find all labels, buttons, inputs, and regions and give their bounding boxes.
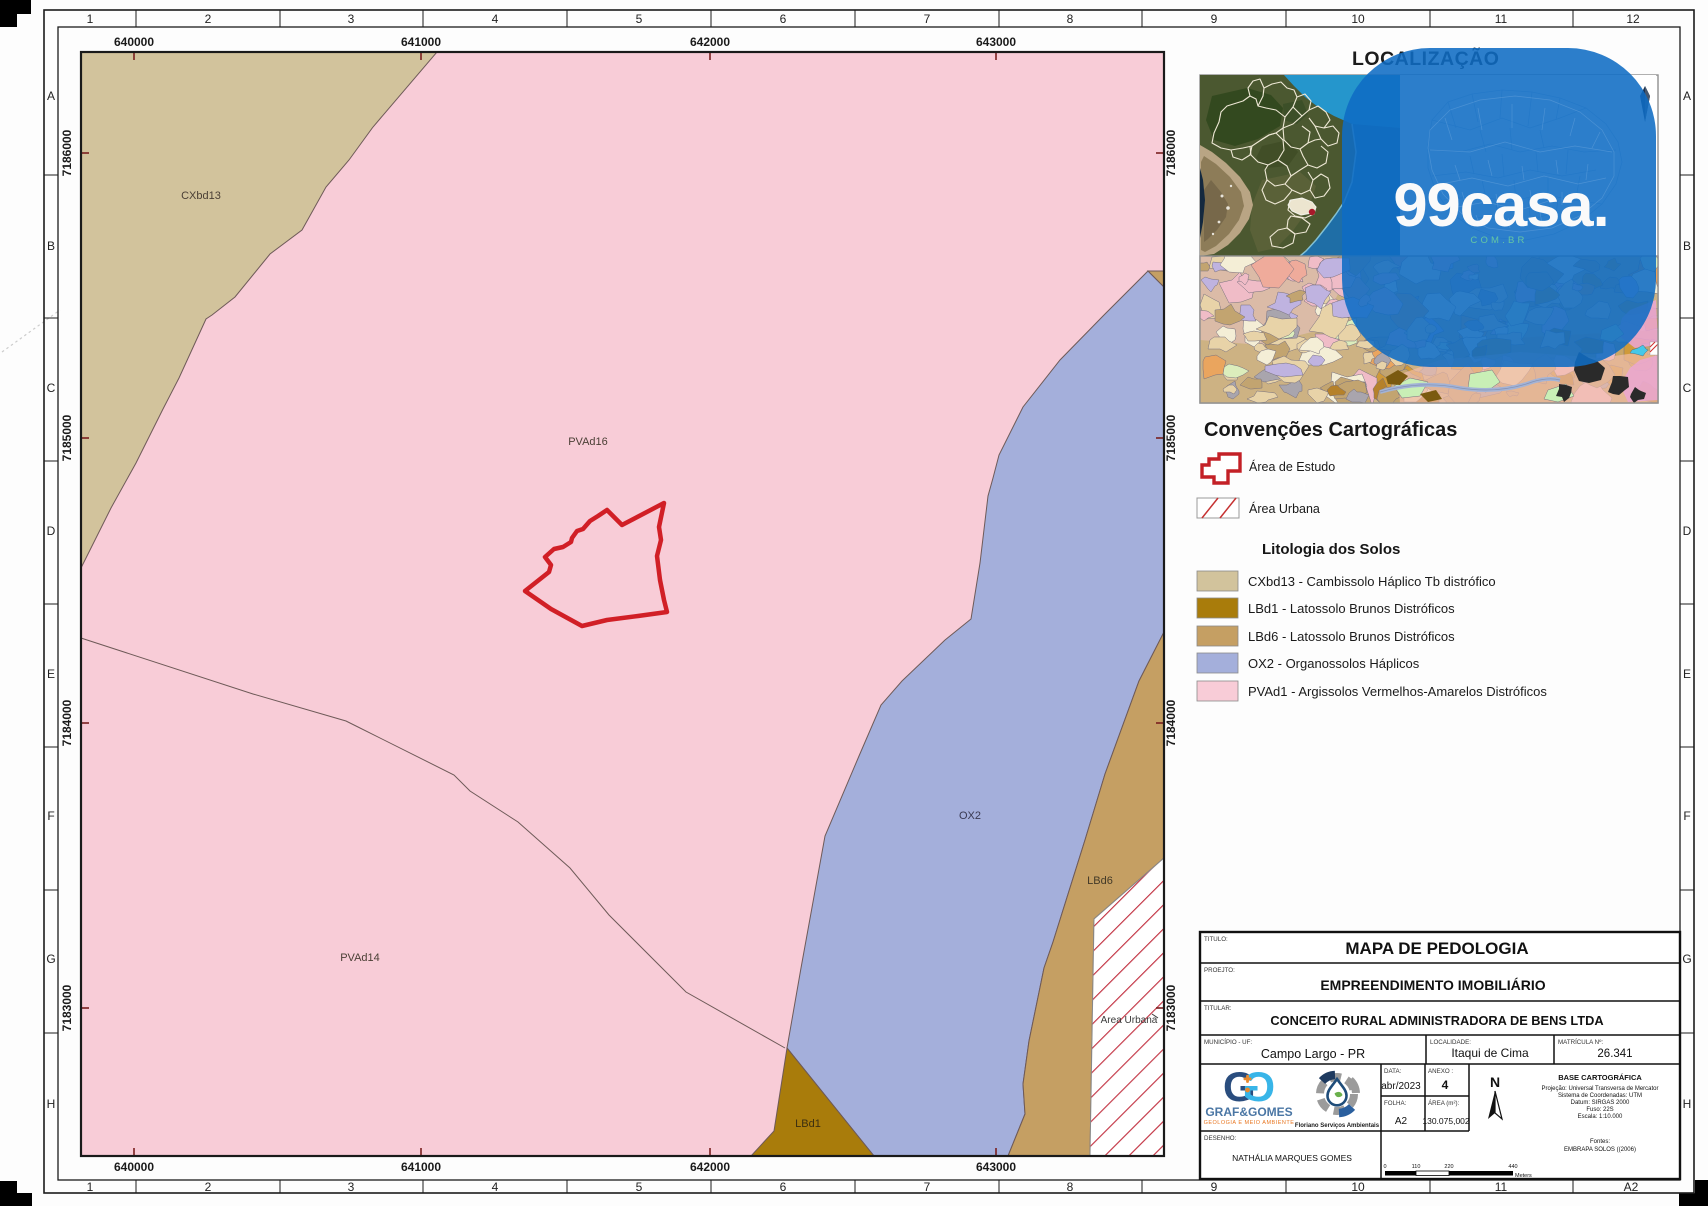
svg-text:3: 3 <box>348 1180 355 1194</box>
svg-text:COM.BR: COM.BR <box>1470 235 1527 246</box>
svg-text:OX2: OX2 <box>959 810 981 822</box>
svg-text:7185000: 7185000 <box>60 414 74 461</box>
svg-text:G: G <box>1242 1063 1275 1110</box>
svg-text:4: 4 <box>492 12 499 26</box>
svg-text:A2: A2 <box>1395 1116 1408 1127</box>
svg-text:0: 0 <box>1383 1164 1386 1170</box>
svg-text:FOLHA:: FOLHA: <box>1384 1100 1407 1107</box>
svg-text:Escala: 1:10.000: Escala: 1:10.000 <box>1578 1114 1623 1120</box>
svg-text:G: G <box>1682 952 1691 966</box>
svg-text:6: 6 <box>780 12 787 26</box>
svg-text:Projeção: Universal Transversa: Projeção: Universal Transversa de Mercat… <box>1541 1086 1658 1092</box>
svg-text:CONCEITO RURAL ADMINISTRADORA: CONCEITO RURAL ADMINISTRADORA DE BENS LT… <box>1270 1013 1603 1028</box>
svg-text:11: 11 <box>1495 1180 1508 1194</box>
svg-text:C: C <box>47 381 56 395</box>
svg-text:F: F <box>1683 809 1690 823</box>
svg-text:10: 10 <box>1351 1180 1365 1194</box>
svg-text:7184000: 7184000 <box>1164 699 1178 746</box>
svg-text:NATHÁLIA MARQUES GOMES: NATHÁLIA MARQUES GOMES <box>1232 1153 1352 1163</box>
svg-text:PVAd1 - Argissolos Vermelhos-A: PVAd1 - Argissolos Vermelhos-Amarelos Di… <box>1248 684 1547 699</box>
svg-text:640000: 640000 <box>114 35 154 49</box>
svg-text:A2: A2 <box>1624 1180 1639 1194</box>
svg-text:B: B <box>1683 239 1691 253</box>
svg-text:ANEXO :: ANEXO : <box>1428 1068 1453 1075</box>
svg-text:110: 110 <box>1412 1164 1421 1170</box>
svg-text:7184000: 7184000 <box>60 699 74 746</box>
svg-text:220: 220 <box>1444 1164 1453 1170</box>
svg-text:Meters: Meters <box>1515 1173 1532 1179</box>
svg-text:H: H <box>47 1097 56 1111</box>
svg-text:640000: 640000 <box>114 1160 154 1174</box>
svg-text:G: G <box>46 952 55 966</box>
svg-text:Litologia dos Solos: Litologia dos Solos <box>1262 541 1400 558</box>
svg-text:8: 8 <box>1067 12 1074 26</box>
svg-text:CXbd13 - Cambissolo Háplico Tb: CXbd13 - Cambissolo Háplico Tb distrófic… <box>1248 574 1496 589</box>
svg-text:5: 5 <box>636 12 643 26</box>
svg-text:4: 4 <box>492 1180 499 1194</box>
svg-text:BASE CARTOGRÁFICA: BASE CARTOGRÁFICA <box>1558 1073 1642 1082</box>
svg-text:LOCALIDADE:: LOCALIDADE: <box>1430 1039 1471 1046</box>
svg-text:7: 7 <box>924 12 931 26</box>
svg-text:9: 9 <box>1211 1180 1218 1194</box>
svg-text:2: 2 <box>205 12 212 26</box>
svg-text:A: A <box>1683 89 1691 103</box>
svg-text:Area Urbana: Area Urbana <box>1101 1015 1158 1026</box>
svg-text:643000: 643000 <box>976 1160 1016 1174</box>
svg-text:PVAd14: PVAd14 <box>340 952 380 964</box>
svg-text:DESENHO:: DESENHO: <box>1204 1135 1237 1142</box>
svg-text:MATRÍCULA Nº:: MATRÍCULA Nº: <box>1558 1039 1603 1046</box>
svg-text:CXbd13: CXbd13 <box>181 190 221 202</box>
svg-text:Campo Largo - PR: Campo Largo - PR <box>1261 1047 1365 1061</box>
svg-text:Área de Estudo: Área de Estudo <box>1249 459 1335 474</box>
svg-text:7186000: 7186000 <box>1164 129 1178 176</box>
svg-text:7185000: 7185000 <box>1164 414 1178 461</box>
svg-text:99casa.: 99casa. <box>1393 171 1608 240</box>
svg-text:5: 5 <box>636 1180 643 1194</box>
svg-text:7183000: 7183000 <box>1164 984 1178 1031</box>
svg-text:PVAd16: PVAd16 <box>568 436 608 448</box>
svg-text:Itaqui de Cima: Itaqui de Cima <box>1451 1046 1529 1060</box>
svg-text:E: E <box>1683 667 1691 681</box>
svg-text:7183000: 7183000 <box>60 984 74 1031</box>
svg-text:D: D <box>1683 524 1692 538</box>
svg-text:4: 4 <box>1442 1078 1449 1092</box>
svg-text:LBd6: LBd6 <box>1087 875 1113 887</box>
svg-text:B: B <box>47 239 55 253</box>
svg-text:Área Urbana: Área Urbana <box>1249 501 1320 516</box>
svg-text:1: 1 <box>87 1180 94 1194</box>
svg-text:N: N <box>1490 1074 1500 1090</box>
svg-text:26.341: 26.341 <box>1597 1048 1632 1060</box>
svg-text:A: A <box>47 89 55 103</box>
svg-text:OX2 - Organossolos Háplicos: OX2 - Organossolos Háplicos <box>1248 656 1420 671</box>
svg-text:H: H <box>1683 1097 1692 1111</box>
svg-text:Fuso: 22S: Fuso: 22S <box>1586 1107 1613 1113</box>
svg-text:3: 3 <box>348 12 355 26</box>
svg-text:1: 1 <box>87 12 94 26</box>
svg-text:TITULAR:: TITULAR: <box>1204 1005 1232 1012</box>
svg-text:642000: 642000 <box>690 1160 730 1174</box>
svg-text:440: 440 <box>1508 1164 1517 1170</box>
svg-text:E: E <box>47 667 55 681</box>
svg-text:8: 8 <box>1067 1180 1074 1194</box>
svg-text:11: 11 <box>1495 12 1508 26</box>
svg-text:641000: 641000 <box>401 1160 441 1174</box>
svg-text:6: 6 <box>780 1180 787 1194</box>
svg-text:EMPREENDIMENTO IMOBILIÁRIO: EMPREENDIMENTO IMOBILIÁRIO <box>1320 977 1545 993</box>
svg-text:642000: 642000 <box>690 35 730 49</box>
svg-text:ÁREA (m²):: ÁREA (m²): <box>1428 1100 1460 1107</box>
svg-text:F: F <box>47 809 54 823</box>
svg-text:PROEJTO:: PROEJTO: <box>1204 967 1235 974</box>
svg-text:Fontes:: Fontes: <box>1590 1139 1610 1145</box>
svg-text:7: 7 <box>924 1180 931 1194</box>
svg-text:D: D <box>47 524 56 538</box>
svg-text:Floriano Serviços Ambientais: Floriano Serviços Ambientais <box>1295 1123 1380 1129</box>
svg-text:MUNICÍPIO - UF:: MUNICÍPIO - UF: <box>1204 1039 1252 1046</box>
svg-text:Datum: SIRGAS 2000: Datum: SIRGAS 2000 <box>1571 1100 1630 1106</box>
svg-text:130.075,002: 130.075,002 <box>1422 1116 1470 1126</box>
svg-text:10: 10 <box>1351 12 1365 26</box>
svg-text:9: 9 <box>1211 12 1218 26</box>
svg-text:12: 12 <box>1626 12 1640 26</box>
svg-text:Sistema de Coordenadas: UTM: Sistema de Coordenadas: UTM <box>1558 1093 1642 1099</box>
svg-text:641000: 641000 <box>401 35 441 49</box>
svg-text:C: C <box>1683 381 1692 395</box>
svg-text:abr/2023: abr/2023 <box>1381 1081 1421 1092</box>
svg-text:GRAF&GOMES: GRAF&GOMES <box>1205 1105 1292 1119</box>
svg-text:7186000: 7186000 <box>60 129 74 176</box>
svg-text:2: 2 <box>205 1180 212 1194</box>
svg-text:643000: 643000 <box>976 35 1016 49</box>
svg-text:LBd1: LBd1 <box>795 1118 821 1130</box>
svg-text:DATA:: DATA: <box>1384 1068 1402 1075</box>
svg-text:LBd1 - Latossolo Brunos Distró: LBd1 - Latossolo Brunos Distróficos <box>1248 601 1455 616</box>
svg-text:Convenções Cartográficas: Convenções Cartográficas <box>1204 419 1457 441</box>
svg-text:EMBRAPA SOLOS ((2006): EMBRAPA SOLOS ((2006) <box>1564 1147 1636 1153</box>
svg-text:TITULO:: TITULO: <box>1204 936 1228 943</box>
svg-text:MAPA DE PEDOLOGIA: MAPA DE PEDOLOGIA <box>1345 939 1528 958</box>
svg-text:LBd6 - Latossolo Brunos Distró: LBd6 - Latossolo Brunos Distróficos <box>1248 629 1455 644</box>
svg-text:GEOLOGIA E MEIO AMBIENTE: GEOLOGIA E MEIO AMBIENTE <box>1204 1120 1295 1126</box>
